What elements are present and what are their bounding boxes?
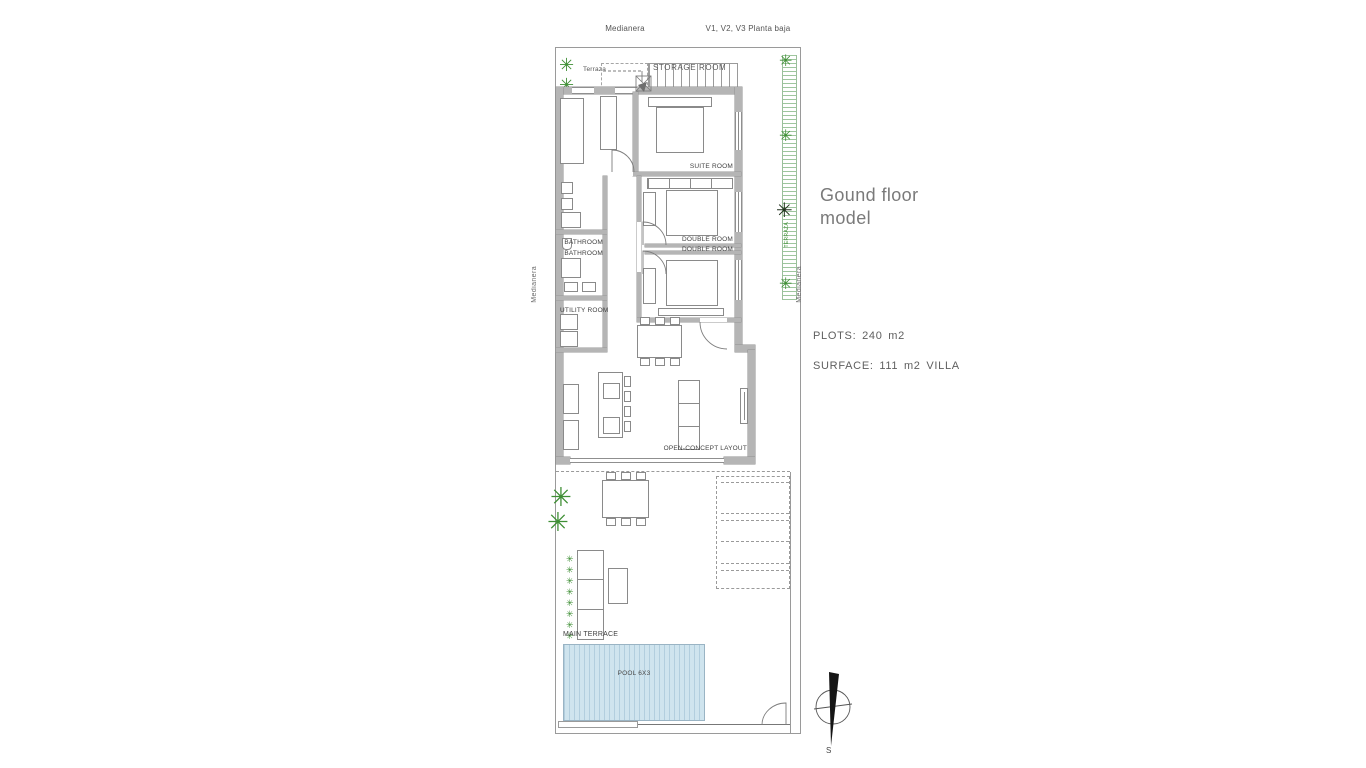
wardrobe	[643, 192, 656, 226]
tv-unit	[740, 388, 748, 424]
parking-line	[721, 520, 789, 521]
stool	[624, 421, 631, 432]
double-bed	[666, 190, 718, 236]
kitchen-counter	[563, 384, 579, 414]
chair	[655, 358, 665, 366]
hall-closet	[560, 98, 584, 164]
hob	[603, 383, 620, 399]
plant-icon: ✳	[566, 556, 574, 565]
chair	[606, 472, 616, 480]
top-label-medianera: Medianera	[575, 25, 675, 34]
stool	[624, 376, 631, 387]
living-door-gap	[700, 318, 727, 322]
dining-table	[637, 325, 682, 358]
page-title-line1: Gound floor	[820, 184, 918, 207]
plant-icon: ✳	[566, 567, 574, 576]
plant-icon: ✳	[547, 510, 569, 536]
compass-south-label: S	[826, 747, 832, 756]
wall-bottom-left-stub	[556, 457, 570, 464]
sink	[561, 198, 573, 210]
parking-line	[721, 482, 789, 483]
right-medianera-label: Medianera	[796, 266, 803, 303]
parking-line	[721, 513, 789, 514]
plant-icon: ✳	[566, 589, 574, 598]
wardrobe	[643, 268, 656, 304]
bathroom-2-label: BATHROOM	[558, 250, 603, 257]
wall-suite-divider	[633, 172, 741, 176]
stairs-dashed-landing	[601, 63, 648, 90]
double-bed	[666, 260, 718, 306]
bathroom-1-label: BATHROOM	[560, 239, 603, 246]
wall-right-lower	[748, 350, 755, 464]
plant-icon: ✳	[779, 53, 792, 69]
pool-label: POOL 6X3	[564, 670, 704, 677]
chair	[640, 358, 650, 366]
vanity-sink	[582, 282, 596, 292]
parking-line	[721, 570, 789, 571]
suite-door-gap	[610, 172, 633, 176]
plant-icon: ✳	[779, 128, 792, 144]
wall-utility	[556, 348, 607, 352]
storage-room-label: STORAGE ROOM	[653, 64, 726, 73]
floor-plan-page: Medianera V1, V2, V3 Planta baja TERRAZA…	[0, 0, 1366, 768]
parking-line	[721, 563, 789, 564]
open-concept-label: OPEN-CONCEPT LAYOUT	[662, 445, 747, 452]
window	[735, 192, 742, 232]
left-medianera-label: Medianera	[531, 266, 538, 303]
parking-area	[716, 476, 790, 589]
plant-icon: ✳	[566, 611, 574, 620]
chair	[636, 518, 646, 526]
plant-icon: ✳	[566, 622, 574, 631]
sink	[561, 182, 573, 194]
coffee-table	[608, 568, 628, 604]
plots-text: PLOTS: 240 m2	[813, 330, 905, 342]
corridor-door-gap	[637, 222, 641, 272]
suite-bed	[656, 107, 704, 153]
stool	[624, 406, 631, 417]
page-title: Gound floor model	[820, 184, 918, 229]
bathtub	[561, 212, 581, 228]
wall-corridor-left	[603, 176, 607, 352]
outdoor-table	[602, 480, 649, 518]
hedge-strip	[782, 55, 797, 300]
tv-screen	[744, 392, 745, 420]
plot-inner-right-line	[790, 472, 791, 734]
plant-icon: ✳	[566, 578, 574, 587]
utility-room-label: UTILITY ROOM	[560, 307, 604, 314]
terrace-dashed-line	[556, 471, 790, 472]
double-room-2-label: DOUBLE ROOM	[660, 246, 733, 253]
pool: POOL 6X3	[563, 644, 705, 721]
compass-icon	[800, 655, 870, 755]
suite-room-label: SUITE ROOM	[660, 163, 733, 170]
plant-icon: ✳	[566, 600, 574, 609]
page-title-line2: model	[820, 207, 918, 230]
sliding-door	[570, 458, 724, 463]
chair	[640, 317, 650, 325]
wall-bottom-right-stub	[724, 457, 755, 464]
washer	[560, 331, 578, 347]
main-terrace-label: MAIN TERRACE	[563, 631, 618, 639]
sofa	[678, 380, 700, 450]
kitchen-counter	[563, 420, 579, 450]
wardrobe	[647, 178, 733, 189]
parking-line	[721, 541, 789, 542]
plant-icon: ✳	[776, 200, 793, 220]
wall-hall-suite	[633, 92, 638, 172]
window	[735, 260, 742, 300]
outdoor-sofa	[577, 550, 604, 640]
chair	[636, 472, 646, 480]
chair	[606, 518, 616, 526]
hall-closet	[600, 96, 617, 150]
chair	[670, 358, 680, 366]
chair	[621, 472, 631, 480]
stool	[624, 391, 631, 402]
window	[735, 112, 742, 150]
kitchen-island	[598, 372, 623, 438]
bed-bench	[658, 308, 724, 316]
washer	[560, 314, 578, 330]
double-room-1-label: DOUBLE ROOM	[660, 236, 733, 243]
chair	[670, 317, 680, 325]
plant-icon: ✳	[779, 276, 792, 292]
hedge-terraza-text: TERRAZA	[784, 222, 790, 247]
top-label-planta-baja: V1, V2, V3 Planta baja	[698, 25, 798, 34]
suite-headboard	[648, 97, 712, 107]
chair	[655, 317, 665, 325]
wall-bath2	[556, 296, 607, 300]
plant-icon: ✳	[559, 57, 574, 75]
window	[572, 87, 594, 94]
shower	[561, 258, 581, 278]
surface-text: SURFACE: 111 m2 VILLA	[813, 360, 960, 372]
wall-bath1	[556, 230, 607, 234]
chair	[621, 518, 631, 526]
vanity-sink	[564, 282, 578, 292]
entry-step	[558, 721, 638, 728]
kitchen-sink	[603, 417, 620, 434]
